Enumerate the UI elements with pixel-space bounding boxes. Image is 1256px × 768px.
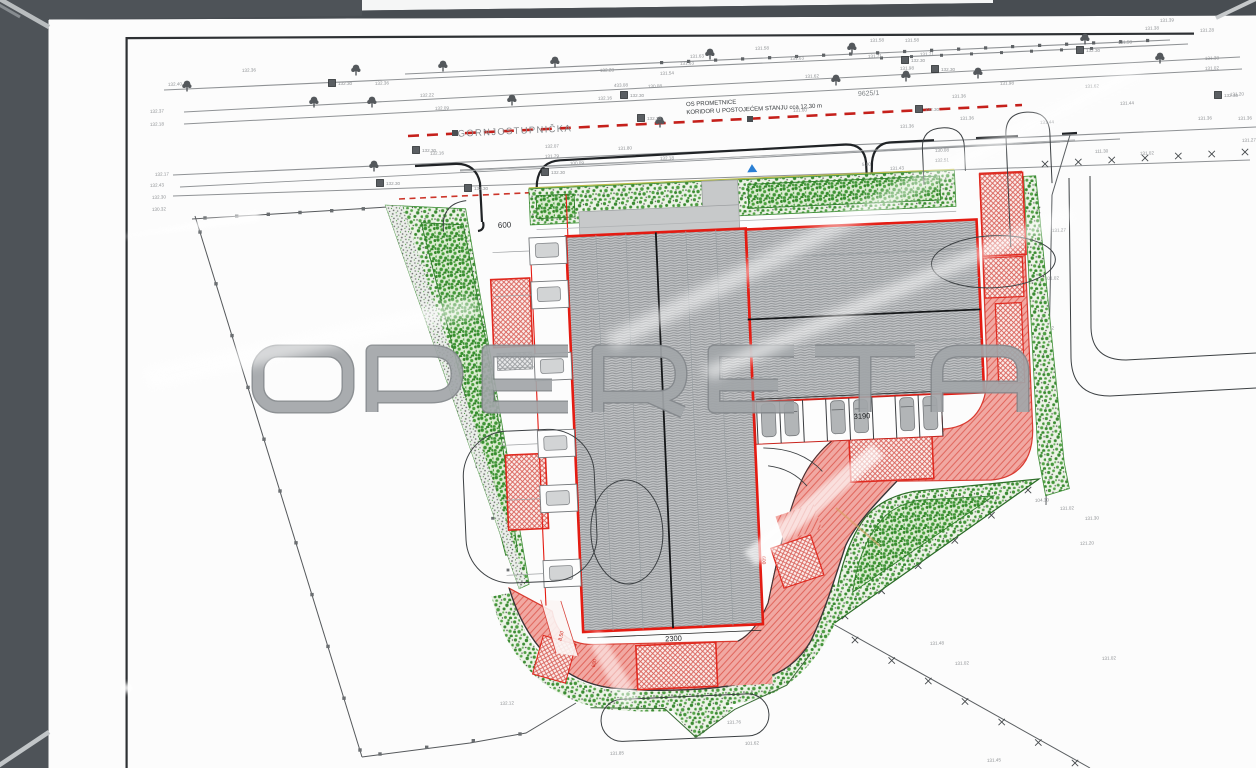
svg-text:131.36: 131.36 (1238, 115, 1253, 121)
svg-text:131.63: 131.63 (680, 60, 695, 66)
svg-text:132.30: 132.30 (386, 181, 400, 186)
svg-text:101.62: 101.62 (745, 740, 760, 746)
svg-text:132.17: 132.17 (155, 171, 170, 177)
svg-text:130.32: 130.32 (152, 206, 167, 212)
svg-text:131.36: 131.36 (960, 115, 975, 121)
svg-text:131.02: 131.02 (955, 660, 970, 666)
svg-text:132.16: 132.16 (598, 95, 613, 101)
svg-text:131.27: 131.27 (1242, 137, 1256, 143)
svg-text:132.36: 132.36 (242, 67, 257, 73)
svg-text:132.30: 132.30 (1086, 48, 1100, 53)
svg-text:131.43: 131.43 (890, 165, 905, 171)
svg-text:132.18: 132.18 (660, 155, 675, 161)
svg-text:111.30: 111.30 (1095, 148, 1109, 154)
svg-text:132.30: 132.30 (152, 194, 167, 200)
svg-text:131.71: 131.71 (920, 51, 935, 57)
svg-text:131.76: 131.76 (727, 719, 742, 725)
svg-text:131.36: 131.36 (952, 93, 967, 99)
svg-text:5,00: 5,00 (862, 162, 872, 167)
svg-text:600: 600 (498, 220, 512, 230)
svg-text:132.30: 132.30 (630, 93, 644, 98)
svg-text:131.36: 131.36 (900, 123, 915, 129)
svg-text:131.60: 131.60 (793, 107, 808, 113)
svg-text:9625/1: 9625/1 (858, 90, 880, 98)
svg-text:132.12: 132.12 (500, 700, 515, 706)
svg-text:131.58: 131.58 (755, 45, 770, 51)
svg-text:132.40: 132.40 (168, 81, 183, 87)
svg-text:131.58: 131.58 (1118, 39, 1133, 45)
svg-text:131.58: 131.58 (905, 37, 920, 43)
svg-text:132.30: 132.30 (925, 107, 939, 112)
svg-text:104.30: 104.30 (1035, 497, 1050, 503)
svg-text:132.09: 132.09 (435, 105, 450, 111)
svg-text:131.02: 131.02 (1205, 65, 1220, 71)
svg-text:130.08: 130.08 (648, 83, 663, 89)
svg-text:131.98: 131.98 (900, 65, 915, 71)
svg-text:101.02: 101.02 (1045, 275, 1060, 281)
svg-text:131.02: 131.02 (1102, 655, 1117, 661)
svg-text:131.45: 131.45 (987, 757, 1002, 763)
svg-text:132.30: 132.30 (647, 116, 661, 121)
svg-text:131.62: 131.62 (805, 73, 820, 79)
svg-text:2300: 2300 (665, 634, 682, 644)
svg-text:132.28: 132.28 (600, 67, 615, 73)
svg-text:132.22: 132.22 (420, 92, 435, 98)
svg-text:131.39: 131.39 (1160, 17, 1175, 23)
svg-text:130.08: 130.08 (935, 147, 950, 153)
svg-text:132.36: 132.36 (375, 80, 390, 86)
svg-text:131.44: 131.44 (1120, 100, 1135, 106)
svg-text:132.30: 132.30 (911, 58, 925, 63)
svg-text:3190: 3190 (853, 411, 870, 421)
svg-text:132.30: 132.30 (551, 170, 565, 175)
svg-text:132.30: 132.30 (338, 81, 352, 86)
svg-text:131.02: 131.02 (1060, 505, 1075, 511)
svg-text:131.63: 131.63 (690, 53, 705, 59)
svg-text:131.20: 131.20 (1230, 91, 1245, 97)
svg-text:132.30: 132.30 (474, 186, 488, 191)
svg-text:131.30: 131.30 (1085, 515, 1100, 521)
svg-text:131.28: 131.28 (1200, 27, 1215, 33)
svg-text:131.36: 131.36 (1198, 115, 1213, 121)
svg-text:433.08: 433.08 (614, 82, 629, 88)
svg-text:131.80: 131.80 (618, 145, 633, 151)
svg-text:132.30: 132.30 (941, 67, 955, 72)
svg-text:131.98: 131.98 (1000, 80, 1015, 86)
svg-text:100.09: 100.09 (570, 160, 585, 166)
svg-text:131.58: 131.58 (870, 37, 885, 43)
svg-text:121.20: 121.20 (1080, 540, 1095, 546)
svg-text:132.07: 132.07 (545, 143, 560, 149)
svg-text:132.18: 132.18 (150, 121, 165, 127)
svg-text:131.48: 131.48 (930, 640, 945, 646)
svg-text:131.79: 131.79 (545, 153, 560, 159)
svg-text:131.71: 131.71 (868, 53, 883, 59)
svg-text:131.38: 131.38 (1145, 25, 1160, 31)
svg-text:131.85: 131.85 (610, 750, 625, 756)
svg-text:131.54: 131.54 (660, 70, 675, 76)
svg-text:131.38: 131.38 (1205, 55, 1220, 61)
svg-text:132.16: 132.16 (430, 150, 445, 156)
svg-text:132.37: 132.37 (150, 108, 165, 114)
svg-text:131.63: 131.63 (790, 55, 805, 61)
svg-text:132.43: 132.43 (150, 182, 165, 188)
